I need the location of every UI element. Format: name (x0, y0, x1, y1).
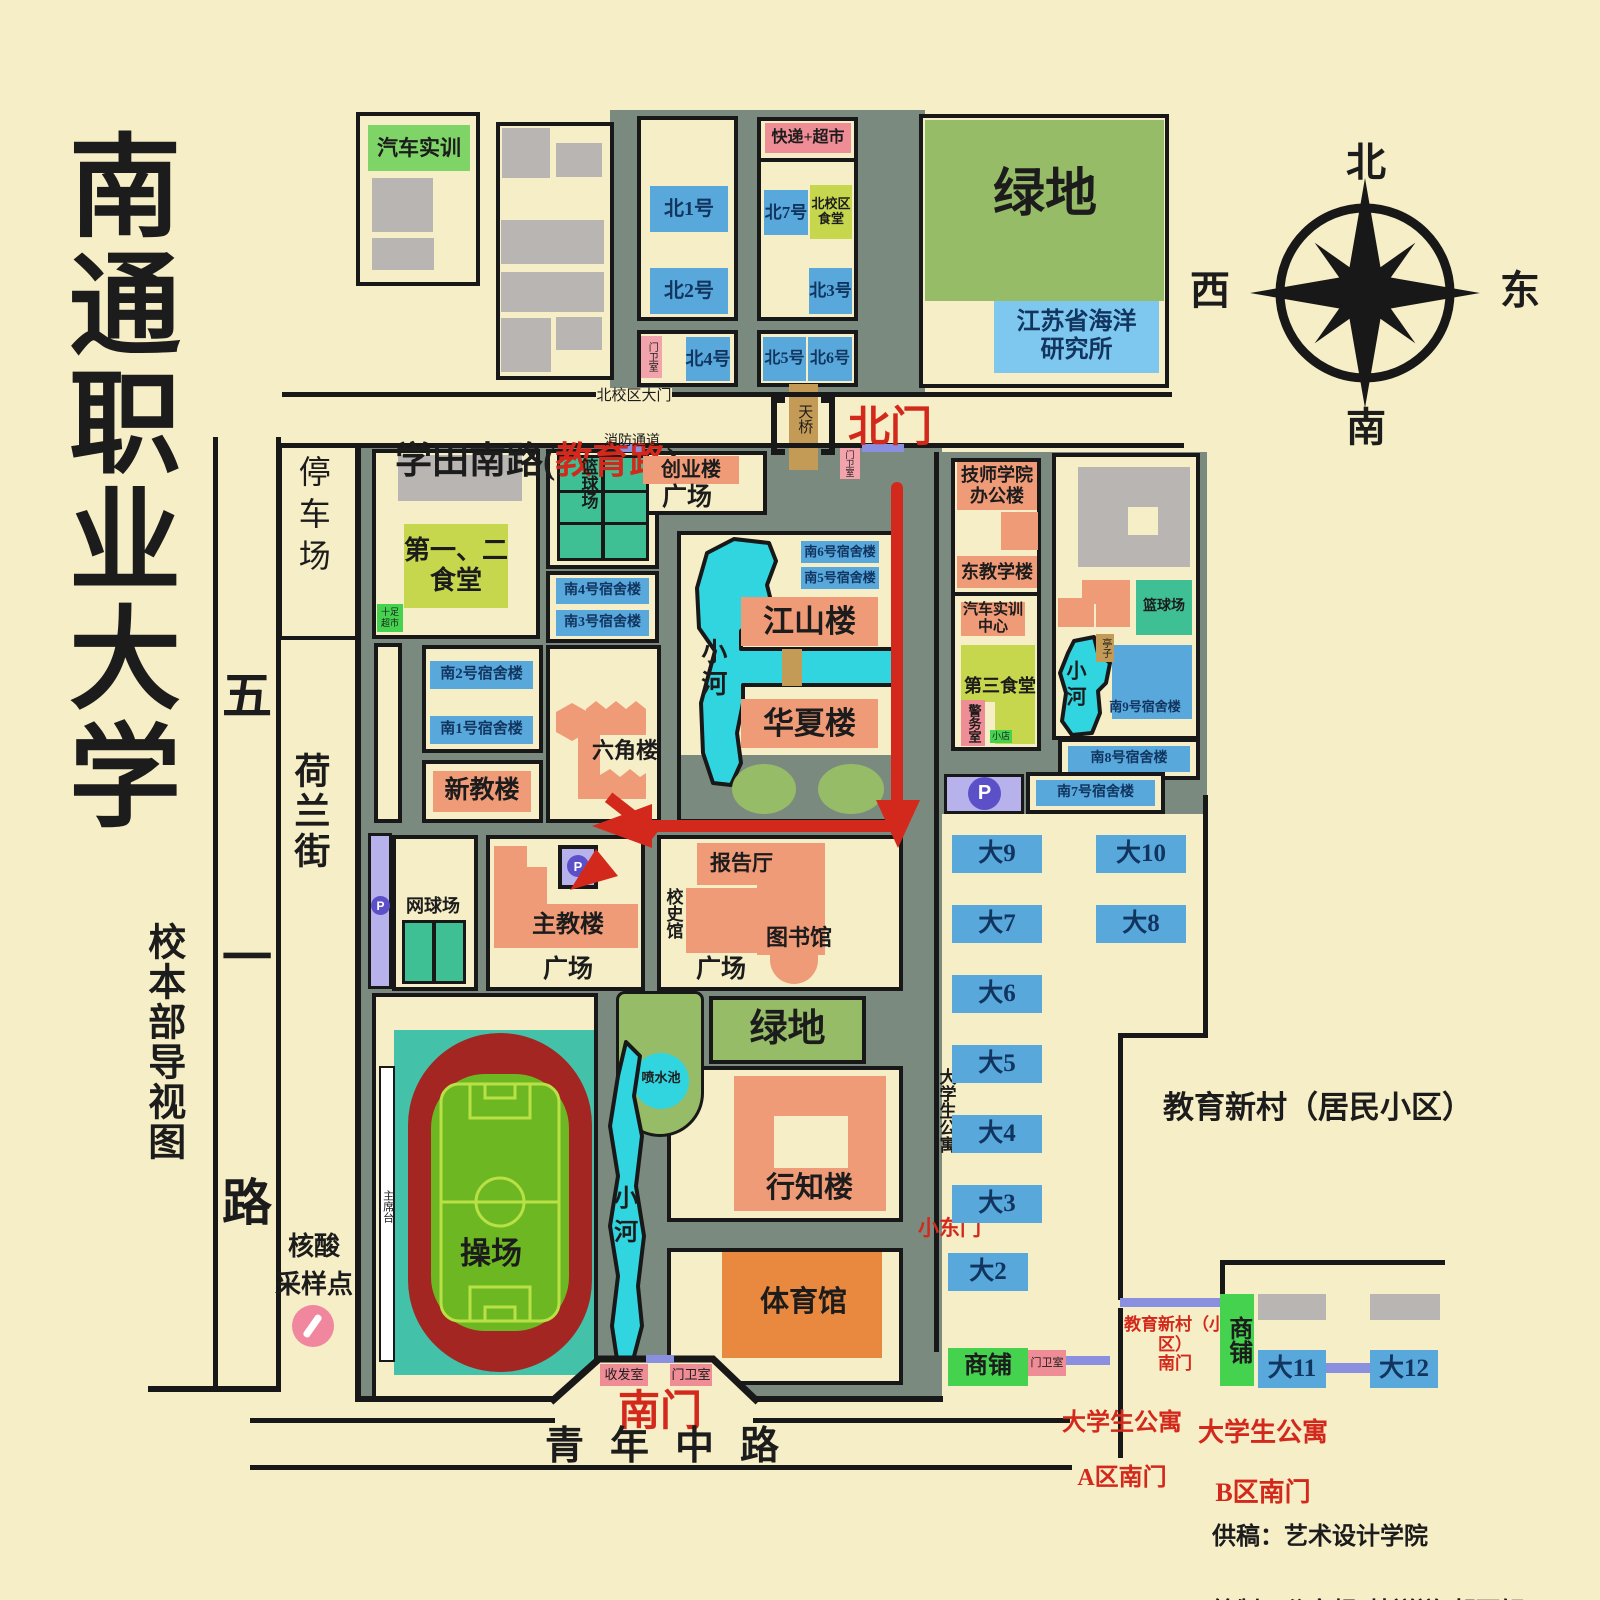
village-gate-label: 教育新村（小 区） 南门 (1120, 1315, 1230, 1374)
apt-d12: 大12 (1370, 1350, 1438, 1388)
fountain-label: 喷水池 (633, 1071, 689, 1086)
pavilion: 亭子 (1096, 634, 1114, 662)
apt-a-gate-label: 大学生公寓 A区南门 (1038, 1382, 1182, 1520)
history-hall-label: 校史馆 (663, 888, 683, 954)
playground-label: 操场 (460, 1236, 522, 1272)
parking-lot-label: 停车场 (294, 455, 331, 615)
gatehouse-a: 门卫室 (1028, 1350, 1066, 1376)
building (502, 128, 550, 178)
block-divider-2 (951, 592, 1041, 596)
xingzhi-courtyard (774, 1116, 848, 1168)
dorm-north-7: 北7号 (764, 190, 808, 235)
dorm-north-6: 北6号 (808, 337, 852, 381)
apt-d11: 大11 (1258, 1350, 1326, 1388)
dorm-south-6: 南6号宿舍楼 (801, 541, 879, 563)
apt-d3: 大3 (952, 1185, 1042, 1223)
compass-north-label: 北 (1346, 140, 1386, 186)
village-boundary-v2 (1118, 1033, 1123, 1300)
canteen3-label: 第三食堂 (964, 676, 1036, 697)
apt-d8: 大8 (1096, 905, 1186, 943)
footbridge-bracket-left (771, 397, 785, 455)
wuyi-road-east-line (276, 437, 281, 1390)
footbridge-label: 天桥 (795, 404, 812, 460)
helan-street-label: 荷兰街 (288, 752, 329, 892)
rostrum-label: 主席台 (381, 1190, 394, 1246)
building (1096, 602, 1130, 627)
test-tube-icon (302, 1313, 323, 1338)
fire-lane-label: 消防通道 (604, 434, 660, 450)
building (1128, 535, 1158, 567)
tennis-court (402, 920, 466, 984)
credits: 供稿：艺术设计学院 绘制：谷文超 韩祥祥 胡雨轩 指导老师：高彦婷 (1188, 1482, 1524, 1600)
field-markings (431, 1074, 569, 1331)
apt-b-gate-line1: 大学生公寓 (1198, 1418, 1328, 1447)
shizu-market: 十足超市 (377, 604, 403, 632)
building (501, 220, 604, 264)
path-b (1326, 1363, 1370, 1373)
north-canteen-line2: 食堂 (818, 212, 844, 227)
nucleic-label-2: 采样点 (266, 1270, 362, 1300)
tech-office-line1: 技师学院 (961, 465, 1033, 486)
building (1082, 580, 1130, 604)
building (501, 272, 604, 312)
shops-a: 商铺 (948, 1348, 1028, 1386)
shops-b: 商铺 (1220, 1294, 1254, 1386)
plaza-east-label: 广场 (696, 956, 746, 985)
lawn-oval-1 (732, 764, 796, 814)
main-teaching-stub (527, 867, 547, 905)
north-canteen-line1: 北校区 (811, 197, 850, 212)
village-label: 教育新村（居民小区） (1163, 1090, 1473, 1126)
apt-a-gate-line1: 大学生公寓 (1062, 1410, 1182, 1436)
building (372, 178, 433, 232)
nucleic-icon (292, 1305, 334, 1347)
small-shop: 小店 (990, 730, 1012, 743)
apt-d5: 大5 (952, 1045, 1042, 1083)
path-a (1066, 1356, 1110, 1365)
credits-line1: 供稿：艺术设计学院 (1212, 1524, 1428, 1550)
wuyi-road-west-line (213, 437, 218, 1390)
youth-road-label: 青年中路 (545, 1425, 805, 1470)
marine-line1: 江苏省海洋 (1017, 309, 1137, 337)
tech-office-line2: 办公楼 (970, 486, 1024, 507)
compass-east-label: 东 (1500, 268, 1540, 314)
village-gate-line2: 南门 (1158, 1354, 1192, 1373)
campus-map: 南通职业大学 校本部导视图 五 一 路 停车场 荷兰街 核酸 采样点 学田南路(… (0, 0, 1600, 1600)
hexagon-building (548, 647, 659, 821)
express-market: 快递+超市 (765, 123, 851, 153)
north-west-gatehouse: 门卫室 (641, 336, 662, 378)
canteen12: 第一、二 食堂 (404, 524, 508, 608)
dorm-north-1: 北1号 (650, 186, 728, 232)
apt-d10: 大10 (1096, 835, 1186, 873)
building (1258, 1294, 1326, 1320)
basketball-court-east: 篮球场 (1136, 580, 1192, 635)
map-title-calligraphy: 南通职业大学 (58, 128, 170, 908)
auto-training-label: 汽车实训 (368, 125, 470, 171)
river-south-label: 小河 (608, 1185, 636, 1275)
auto-training-center: 汽车实训 中心 (961, 602, 1025, 636)
report-hall-label: 报告厅 (710, 851, 773, 875)
village-gate-line1: 教育新村（小 区） (1124, 1315, 1226, 1354)
building (372, 238, 434, 270)
village-boundary-v1 (1203, 795, 1208, 1035)
marine-institute: 江苏省海洋 研究所 (994, 301, 1159, 373)
building (556, 317, 602, 350)
soccer-field (431, 1074, 569, 1331)
xuetian-road-label: 学田南路(教育路) (358, 398, 679, 526)
wuyi-road-char-wu: 五 (222, 668, 272, 726)
tech-college-office: 技师学院 办公楼 (957, 462, 1037, 510)
river-bridge (782, 649, 802, 686)
block-divider (757, 158, 858, 162)
apt-d9: 大9 (952, 835, 1042, 873)
dorm-south-7: 南7号宿舍楼 (1036, 780, 1155, 806)
building (1001, 512, 1038, 550)
building (556, 143, 602, 177)
canteen12-line1: 第一、二 (404, 536, 508, 566)
north-campus-canteen: 北校区 食堂 (810, 185, 852, 239)
history-hall-building (686, 888, 758, 953)
plaza-north-label: 广场 (662, 484, 712, 513)
dorm-south-3: 南3号宿舍楼 (556, 610, 649, 636)
dorm-north-5: 北5号 (763, 337, 806, 381)
bzone-top-line (1220, 1260, 1445, 1265)
south-gate-line (646, 1355, 674, 1363)
chuangye-building: 创业楼 (643, 456, 739, 484)
east-teaching-building: 东教学楼 (957, 556, 1037, 588)
campus-bottom-line-east (753, 1396, 943, 1402)
huaxia-building: 华夏楼 (741, 699, 878, 748)
apt-d2: 大2 (948, 1253, 1028, 1291)
parking-icon-main: P (567, 855, 589, 877)
compass-west-label: 西 (1190, 268, 1230, 314)
building (1078, 507, 1128, 567)
youth-road-top-east (753, 1418, 1070, 1423)
dorm-south-1: 南1号宿舍楼 (430, 716, 533, 744)
north-campus-gate-label: 北校区大门 (596, 388, 672, 406)
marine-line2: 研究所 (1041, 337, 1113, 365)
south-gatehouse: 门卫室 (670, 1364, 712, 1386)
apt-a-gate-line2: A区南门 (1077, 1465, 1166, 1491)
parking-icon-west: P (371, 896, 390, 915)
canteen12-line2: 食堂 (430, 566, 482, 596)
building (1158, 487, 1190, 567)
auto-center-line1: 汽车实训 (963, 602, 1023, 619)
compass-rose (1230, 145, 1500, 441)
youth-road-top-west (250, 1418, 555, 1423)
basketball-north-label: 篮球场 (578, 458, 598, 528)
compass-south-label: 南 (1346, 405, 1386, 451)
library-label: 图书馆 (766, 925, 832, 950)
wuyi-road-char-yi: 一 (222, 930, 272, 988)
main-teaching-label: 主教楼 (532, 912, 604, 940)
gym-label: 体育馆 (760, 1286, 847, 1319)
plaza-west-label: 广场 (543, 956, 593, 985)
building (1370, 1294, 1440, 1320)
parking-icon-east: P (968, 777, 1001, 810)
police-room: 警务室 (961, 700, 985, 746)
village-boundary-h1 (1118, 1033, 1208, 1038)
river-central-label: 小河 (697, 638, 727, 708)
south-lawn: 绿地 (709, 996, 866, 1064)
xuetian-road-top-line (282, 392, 1172, 397)
dorm-south-4: 南4号宿舍楼 (556, 578, 649, 604)
north-gate-label: 北门 (848, 404, 932, 452)
dorm-south-2: 南2号宿舍楼 (430, 661, 533, 689)
apt-d4: 大4 (952, 1115, 1042, 1153)
dorm-south-8: 南8号宿舍楼 (1068, 746, 1190, 772)
tennis-label: 网球场 (406, 896, 460, 917)
dorm-north-2: 北2号 (650, 268, 728, 314)
new-teaching-building: 新教楼 (433, 771, 531, 812)
river-east-label: 小河 (1062, 660, 1085, 720)
campus-west-wall (355, 443, 361, 1402)
narrow-strip-block (374, 643, 402, 823)
auto-center-line2: 中心 (978, 619, 1008, 636)
footbridge-bracket-right (821, 397, 835, 455)
dorm-north-4: 北4号 (686, 337, 730, 381)
jiangshan-building: 江山楼 (741, 597, 878, 646)
apt-d7: 大7 (952, 905, 1042, 943)
apt-d6: 大6 (952, 975, 1042, 1013)
nucleic-label-1: 核酸 (282, 1232, 346, 1262)
xingzhi-label: 行知楼 (766, 1172, 853, 1205)
dorm-south-9-label: 南9号宿舍楼 (1095, 700, 1195, 715)
dorm-south-5: 南5号宿舍楼 (801, 567, 879, 589)
xuetian-prefix: 学田南路( (395, 441, 555, 482)
wuyi-road-char-lu: 路 (222, 1175, 272, 1233)
map-caption: 校本部导视图 (140, 922, 184, 1182)
hexagon-label: 六角楼 (592, 738, 658, 763)
dorm-north-3: 北3号 (809, 268, 852, 314)
path-village (1120, 1298, 1222, 1307)
building (501, 318, 551, 372)
mail-room: 收发室 (600, 1364, 648, 1386)
lawn-oval-2 (818, 764, 884, 814)
campus-bottom-line-west (355, 1396, 555, 1402)
green-space-label: 绿地 (960, 165, 1130, 225)
